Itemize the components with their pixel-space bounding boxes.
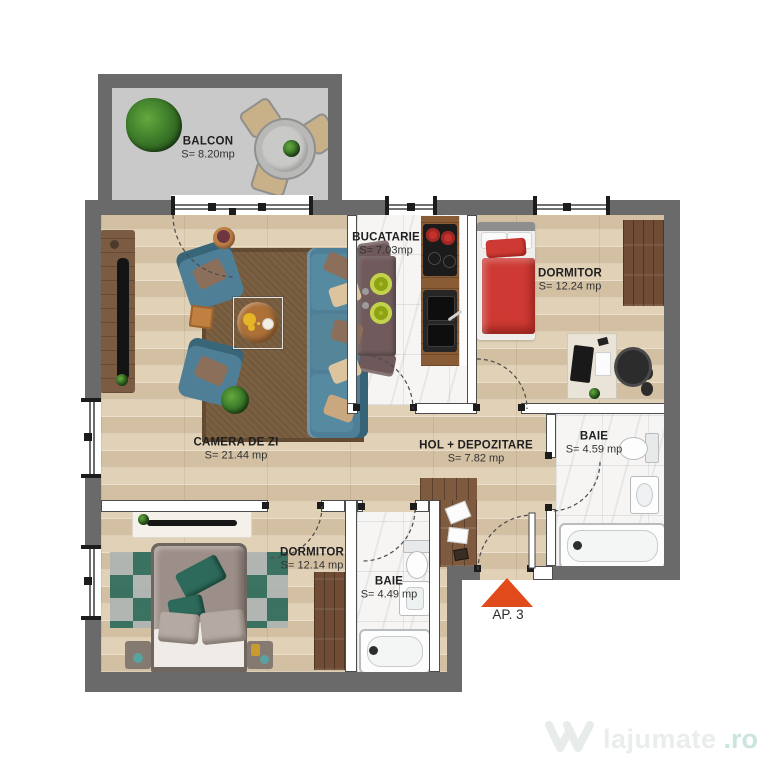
nightstand <box>125 641 151 669</box>
wall-bathroom2-top <box>357 500 363 512</box>
room-area: S= 8.20mp <box>181 149 235 161</box>
nightstand-deco <box>260 655 269 664</box>
bedroom-rug <box>110 552 154 628</box>
room-label-dormitor1: DORMITOR S= 12.24 mp <box>538 268 602 293</box>
tv-screen <box>117 258 129 380</box>
storage-floor <box>420 478 477 502</box>
wall-entry-jamb <box>533 566 553 580</box>
tv-console <box>132 510 252 538</box>
room-label-dormitor2: DORMITOR S= 12.14 mp <box>280 547 344 572</box>
bed-pillow <box>158 611 200 644</box>
room-area: S= 21.44 mp <box>193 450 278 462</box>
room-label-baie2: BAIE S= 4.49 mp <box>361 576 418 601</box>
room-name: BALCON <box>181 136 235 148</box>
bathroom-sink <box>630 476 659 514</box>
wall-bathroom1-left <box>546 414 556 458</box>
armchair-pillow <box>193 355 229 387</box>
lajumate-logo-icon <box>544 718 596 760</box>
laptop <box>570 345 594 383</box>
wardrobe <box>314 572 345 670</box>
bed-headboard <box>477 222 535 231</box>
phone <box>597 337 608 346</box>
balcony-plant-icon <box>126 98 182 152</box>
papers <box>595 352 611 376</box>
room-name: BAIE <box>566 431 623 443</box>
burner <box>443 255 456 268</box>
room-label-bucatarie: BUCATARIE S= 7.03mp <box>352 232 420 257</box>
wall-bedroom2-top <box>101 500 268 512</box>
bed-pillow-red <box>485 238 526 259</box>
bed-red <box>477 222 535 340</box>
wall-right <box>664 200 680 580</box>
bathtub <box>359 629 431 674</box>
room-name: CAMERA DE ZI <box>193 437 278 449</box>
nightstand <box>247 641 273 669</box>
gold-deco <box>251 644 260 656</box>
sideboard-deco <box>110 240 119 249</box>
room-name: HOL + DEPOZITARE <box>419 440 533 452</box>
plant-icon <box>221 386 249 414</box>
room-name: DORMITOR <box>280 547 344 559</box>
room-name: BUCATARIE <box>352 232 420 244</box>
nightstand-deco <box>133 653 143 663</box>
bed-pillow <box>199 609 246 645</box>
bathtub-drain <box>573 541 582 550</box>
bed-double <box>151 543 247 673</box>
table-plant-icon <box>283 140 300 157</box>
floor-plan: BALCON S= 8.20mp BUCATARIE S= 7.03mp DOR… <box>0 0 768 768</box>
plant-icon <box>116 374 128 386</box>
toilet-bowl <box>619 437 648 460</box>
sink-bowl <box>636 483 653 507</box>
wardrobe <box>623 220 664 306</box>
room-area: S= 4.59 mp <box>566 444 623 456</box>
green-plate <box>370 302 392 324</box>
room-label-hol: HOL + DEPOZITARE S= 7.82 mp <box>419 440 533 465</box>
window-living <box>171 195 313 215</box>
wall-bathroom1-left <box>546 509 556 566</box>
window-kitchen <box>385 196 437 215</box>
wall-bedroom-bottom <box>521 403 666 414</box>
window-bedroom1 <box>533 196 610 215</box>
balcony-wall-left <box>98 74 112 202</box>
cup <box>362 288 369 295</box>
watermark: lajumate.ro <box>544 718 758 760</box>
plant-icon <box>138 514 149 525</box>
papers <box>447 527 469 544</box>
watermark-suffix: .ro <box>723 724 758 755</box>
window-bedroom2-left <box>81 545 101 620</box>
flower-vase <box>213 227 235 249</box>
bathtub-drain <box>369 646 378 655</box>
cup <box>362 302 369 309</box>
stove <box>423 224 457 276</box>
watermark-text: lajumate <box>603 724 717 755</box>
wall-bottom-right <box>553 566 680 580</box>
bed-duvet-red <box>482 258 535 334</box>
fruit-bowl <box>243 313 256 326</box>
room-area: S= 12.24 mp <box>538 281 602 293</box>
room-label-balcon: BALCON S= 8.20mp <box>181 136 235 161</box>
wall-bath2-right <box>447 566 462 692</box>
flowers <box>217 230 230 243</box>
red-pot <box>441 231 455 245</box>
green-plate <box>370 273 392 295</box>
room-label-camera-de-zi: CAMERA DE ZI S= 21.44 mp <box>193 437 278 462</box>
room-area: S= 7.82 mp <box>419 453 533 465</box>
sink-basin <box>427 324 455 347</box>
plate <box>262 318 274 330</box>
room-area: S= 7.03mp <box>352 245 420 257</box>
kitchen-sink <box>423 290 457 352</box>
room-name: DORMITOR <box>538 268 602 280</box>
wall-hall-top <box>415 403 477 414</box>
room-name: BAIE <box>361 576 418 588</box>
office-chair <box>617 350 649 384</box>
entrance-label: AP. 3 <box>492 607 523 622</box>
tv-screen <box>147 520 237 526</box>
balcony-table <box>254 118 316 180</box>
plant-icon <box>589 388 600 399</box>
room-label-baie1: BAIE S= 4.59 mp <box>566 431 623 456</box>
wall-kitchen-right <box>467 215 477 414</box>
wall-bottom-left <box>85 672 462 692</box>
balcony-wall-right <box>328 74 342 202</box>
armchair-pillow <box>191 258 228 291</box>
red-pot <box>426 228 440 242</box>
wall-bathroom2-right <box>429 500 440 672</box>
burner <box>428 252 441 265</box>
room-area: S= 12.14 mp <box>280 560 344 572</box>
bathtub <box>559 523 666 569</box>
wall-bathroom2-top <box>415 500 429 512</box>
wall-bedroom2-top <box>321 500 345 512</box>
dining-table <box>358 256 396 356</box>
side-table <box>189 305 215 330</box>
room-area: S= 4.49 mp <box>361 589 418 601</box>
balcony-wall-top <box>98 74 342 88</box>
wall-bedroom2-right <box>345 500 357 672</box>
wall-hall-top <box>347 403 358 414</box>
window-living-left <box>81 398 101 478</box>
entrance-triangle-icon <box>481 578 533 607</box>
